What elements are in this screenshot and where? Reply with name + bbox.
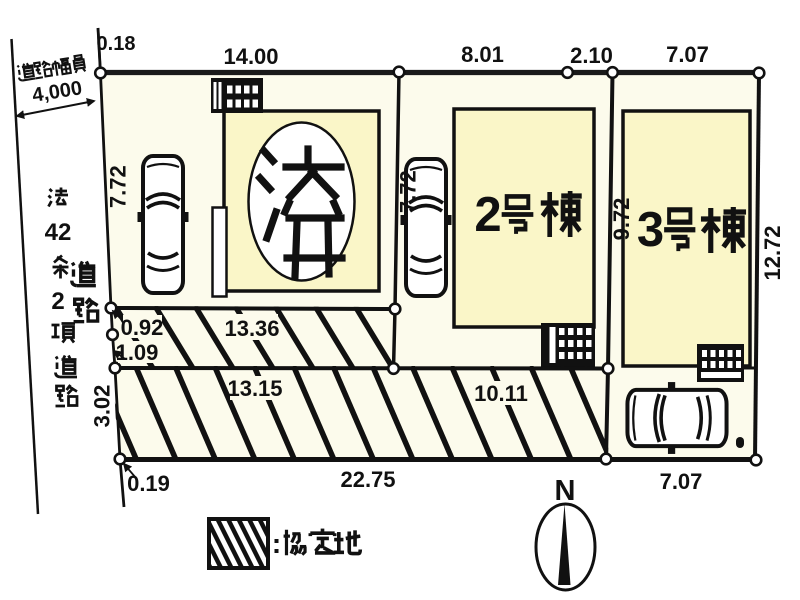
svg-text:13.15: 13.15 xyxy=(227,376,282,401)
svg-text:7.07: 7.07 xyxy=(660,469,703,494)
svg-text:13.36: 13.36 xyxy=(224,316,279,341)
svg-text:0.92: 0.92 xyxy=(121,315,164,340)
svg-text:8.01: 8.01 xyxy=(461,42,504,67)
svg-text:3: 3 xyxy=(637,203,664,257)
svg-text:14.00: 14.00 xyxy=(223,44,278,69)
svg-text:3.02: 3.02 xyxy=(90,385,115,428)
svg-text:7.72: 7.72 xyxy=(105,165,130,208)
svg-text:7.72: 7.72 xyxy=(396,170,421,213)
svg-text:12.72: 12.72 xyxy=(760,225,785,280)
svg-text:0.18: 0.18 xyxy=(97,33,136,55)
svg-text:9.72: 9.72 xyxy=(609,198,634,241)
svg-text:2.10: 2.10 xyxy=(570,43,613,68)
svg-text:2: 2 xyxy=(51,288,64,315)
svg-text:1.09: 1.09 xyxy=(116,340,159,365)
svg-text:42: 42 xyxy=(45,219,72,246)
svg-text:2: 2 xyxy=(474,188,501,242)
svg-text:N: N xyxy=(555,475,576,507)
svg-text:7.07: 7.07 xyxy=(666,42,709,67)
svg-text:10.11: 10.11 xyxy=(474,381,528,406)
svg-text:22.75: 22.75 xyxy=(340,467,395,492)
svg-text:0.19: 0.19 xyxy=(127,471,170,496)
